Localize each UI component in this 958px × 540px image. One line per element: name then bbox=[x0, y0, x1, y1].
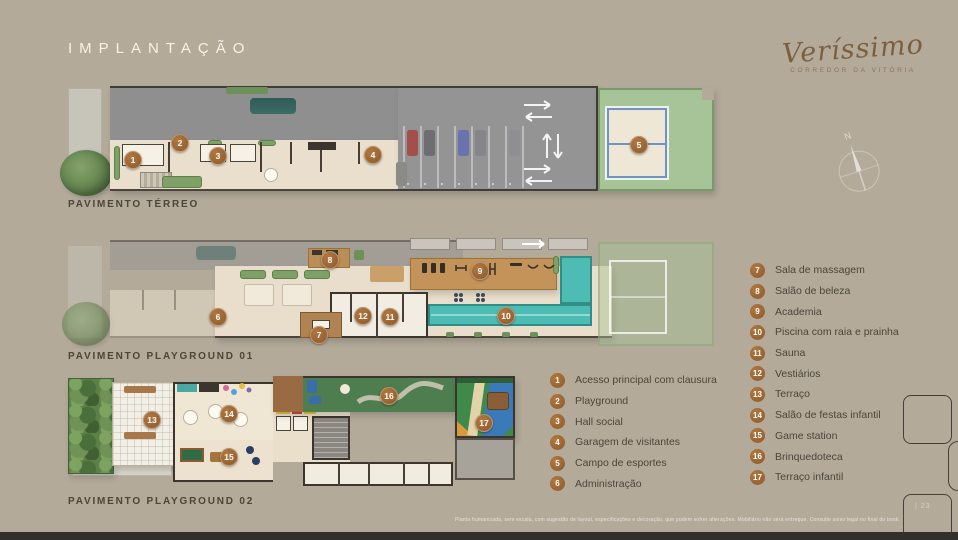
legend-item-11: 11 Sauna bbox=[750, 343, 899, 364]
legal-disclaimer: Planta humanizada, sem escala, com suges… bbox=[455, 517, 900, 523]
legend-badge-2: 2 bbox=[550, 394, 565, 409]
legend-item-16: 16 Brinquedoteca bbox=[750, 446, 899, 467]
plan-marker-12: 12 bbox=[354, 307, 372, 325]
legend-item-3: 3 Hall social bbox=[550, 411, 717, 432]
legend-badge-16: 16 bbox=[750, 449, 765, 464]
plan-marker-13: 13 bbox=[143, 411, 161, 429]
legend-label-15: Game station bbox=[775, 430, 837, 442]
plan-marker-14: 14 bbox=[220, 405, 238, 423]
plan-marker-1: 1 bbox=[124, 151, 142, 169]
brand-logo: Veríssimo CORREDOR DA VITÓRIA bbox=[778, 36, 928, 74]
plan-label-terreo: PAVIMENTO TÉRREO bbox=[68, 199, 199, 210]
plan-marker-11: 11 bbox=[381, 308, 399, 326]
legend-label-11: Sauna bbox=[775, 347, 805, 359]
legend-left: 1 Acesso principal com clausura 2 Playgr… bbox=[550, 370, 717, 494]
legend-item-8: 8 Salão de beleza bbox=[750, 281, 899, 302]
legend-item-5: 5 Campo de esportes bbox=[550, 453, 717, 474]
floorplan-terreo: 1 2 3 4 5 bbox=[58, 78, 720, 197]
legend-label-7: Sala de massagem bbox=[775, 264, 865, 276]
page-number: | 23 bbox=[915, 503, 931, 510]
brand-name: Veríssimo bbox=[777, 31, 929, 68]
legend-label-13: Terraço bbox=[775, 388, 810, 400]
page-title: IMPLANTAÇÃO bbox=[68, 40, 251, 57]
plan-marker-17: 17 bbox=[475, 414, 493, 432]
legend-label-5: Campo de esportes bbox=[575, 457, 667, 469]
bottom-bar bbox=[0, 532, 958, 540]
decorative-frame-2 bbox=[948, 441, 958, 491]
floorplan-playground-01: 6 7 8 9 10 11 12 bbox=[58, 232, 720, 350]
legend-label-9: Academia bbox=[775, 306, 822, 318]
legend-label-4: Garagem de visitantes bbox=[575, 436, 680, 448]
legend-label-1: Acesso principal com clausura bbox=[575, 374, 717, 386]
legend-label-12: Vestiários bbox=[775, 368, 821, 380]
legend-label-8: Salão de beleza bbox=[775, 285, 850, 297]
legend-item-15: 15 Game station bbox=[750, 426, 899, 447]
legend-badge-11: 11 bbox=[750, 346, 765, 361]
plan-marker-10: 10 bbox=[497, 307, 515, 325]
plan-marker-6: 6 bbox=[209, 308, 227, 326]
legend-item-13: 13 Terraço bbox=[750, 384, 899, 405]
plan-marker-15: 15 bbox=[220, 448, 238, 466]
compass-icon: N bbox=[818, 126, 894, 202]
legend-label-3: Hall social bbox=[575, 416, 623, 428]
legend-right: 7 Sala de massagem 8 Salão de beleza 9 A… bbox=[750, 260, 899, 488]
decorative-frame-1 bbox=[903, 395, 952, 444]
legend-badge-7: 7 bbox=[750, 263, 765, 278]
floorplan-playground-02: 13 14 15 16 17 bbox=[58, 372, 538, 492]
plan-marker-16: 16 bbox=[380, 387, 398, 405]
legend-badge-10: 10 bbox=[750, 325, 765, 340]
brochure-page: IMPLANTAÇÃO Veríssimo CORREDOR DA VITÓRI… bbox=[0, 0, 958, 540]
legend-item-12: 12 Vestiários bbox=[750, 363, 899, 384]
plan-label-playground-01: PAVIMENTO PLAYGROUND 01 bbox=[68, 351, 254, 362]
legend-item-7: 7 Sala de massagem bbox=[750, 260, 899, 281]
legend-badge-15: 15 bbox=[750, 428, 765, 443]
plan-marker-7: 7 bbox=[310, 326, 328, 344]
legend-badge-4: 4 bbox=[550, 435, 565, 450]
legend-badge-1: 1 bbox=[550, 373, 565, 388]
legend-label-16: Brinquedoteca bbox=[775, 451, 843, 463]
legend-item-9: 9 Academia bbox=[750, 301, 899, 322]
legend-item-17: 17 Terraço infantil bbox=[750, 467, 899, 488]
legend-badge-9: 9 bbox=[750, 304, 765, 319]
legend-badge-6: 6 bbox=[550, 476, 565, 491]
legend-label-14: Salão de festas infantil bbox=[775, 409, 881, 421]
plan1-linework bbox=[58, 78, 720, 197]
legend-item-1: 1 Acesso principal com clausura bbox=[550, 370, 717, 391]
plan-marker-9: 9 bbox=[471, 262, 489, 280]
legend-badge-5: 5 bbox=[550, 456, 565, 471]
legend-label-2: Playground bbox=[575, 395, 628, 407]
plan-marker-3: 3 bbox=[209, 147, 227, 165]
legend-item-6: 6 Administração bbox=[550, 473, 717, 494]
legend-label-6: Administração bbox=[575, 478, 642, 490]
legend-badge-17: 17 bbox=[750, 470, 765, 485]
legend-badge-12: 12 bbox=[750, 366, 765, 381]
legend-badge-14: 14 bbox=[750, 408, 765, 423]
legend-badge-13: 13 bbox=[750, 387, 765, 402]
plan-marker-8: 8 bbox=[321, 251, 339, 269]
plan-marker-5: 5 bbox=[630, 136, 648, 154]
plan-marker-2: 2 bbox=[171, 134, 189, 152]
legend-label-10: Piscina com raia e prainha bbox=[775, 326, 899, 338]
legend-item-10: 10 Piscina com raia e prainha bbox=[750, 322, 899, 343]
legend-badge-8: 8 bbox=[750, 284, 765, 299]
plan3-linework bbox=[58, 372, 538, 492]
plan-label-playground-02: PAVIMENTO PLAYGROUND 02 bbox=[68, 496, 254, 507]
legend-badge-3: 3 bbox=[550, 414, 565, 429]
legend-item-14: 14 Salão de festas infantil bbox=[750, 405, 899, 426]
legend-label-17: Terraço infantil bbox=[775, 471, 843, 483]
legend-item-4: 4 Garagem de visitantes bbox=[550, 432, 717, 453]
plan-marker-4: 4 bbox=[364, 146, 382, 164]
plan2-linework bbox=[58, 232, 720, 350]
svg-text:N: N bbox=[843, 130, 852, 142]
legend-item-2: 2 Playground bbox=[550, 391, 717, 412]
